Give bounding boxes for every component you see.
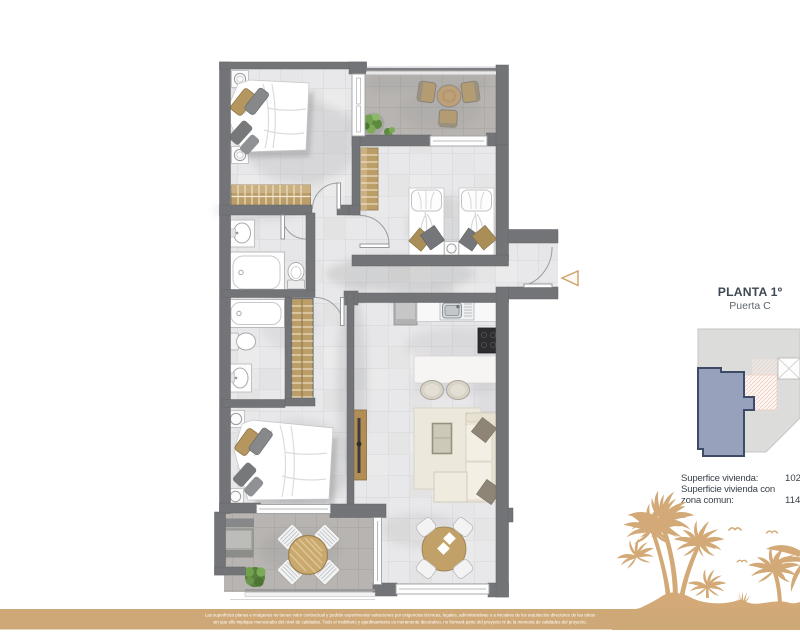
- svg-text:Superfice vivienda:: Superfice vivienda:: [681, 473, 758, 484]
- svg-text:zona comun:: zona comun:: [681, 495, 734, 506]
- svg-text:PLANTA 1º: PLANTA 1º: [718, 285, 783, 299]
- svg-text:Superficie vivienda con: Superficie vivienda con: [681, 484, 775, 495]
- svg-text:sin que ello implique menoscab: sin que ello implique menoscabo del nive…: [213, 620, 587, 625]
- svg-text:Puerta C: Puerta C: [729, 300, 771, 312]
- svg-text:Las superficies planas e imáge: Las superficies planas e imágenes no tie…: [205, 613, 596, 618]
- svg-text:114.2: 114.2: [785, 495, 800, 506]
- svg-text:102.4: 102.4: [785, 473, 800, 484]
